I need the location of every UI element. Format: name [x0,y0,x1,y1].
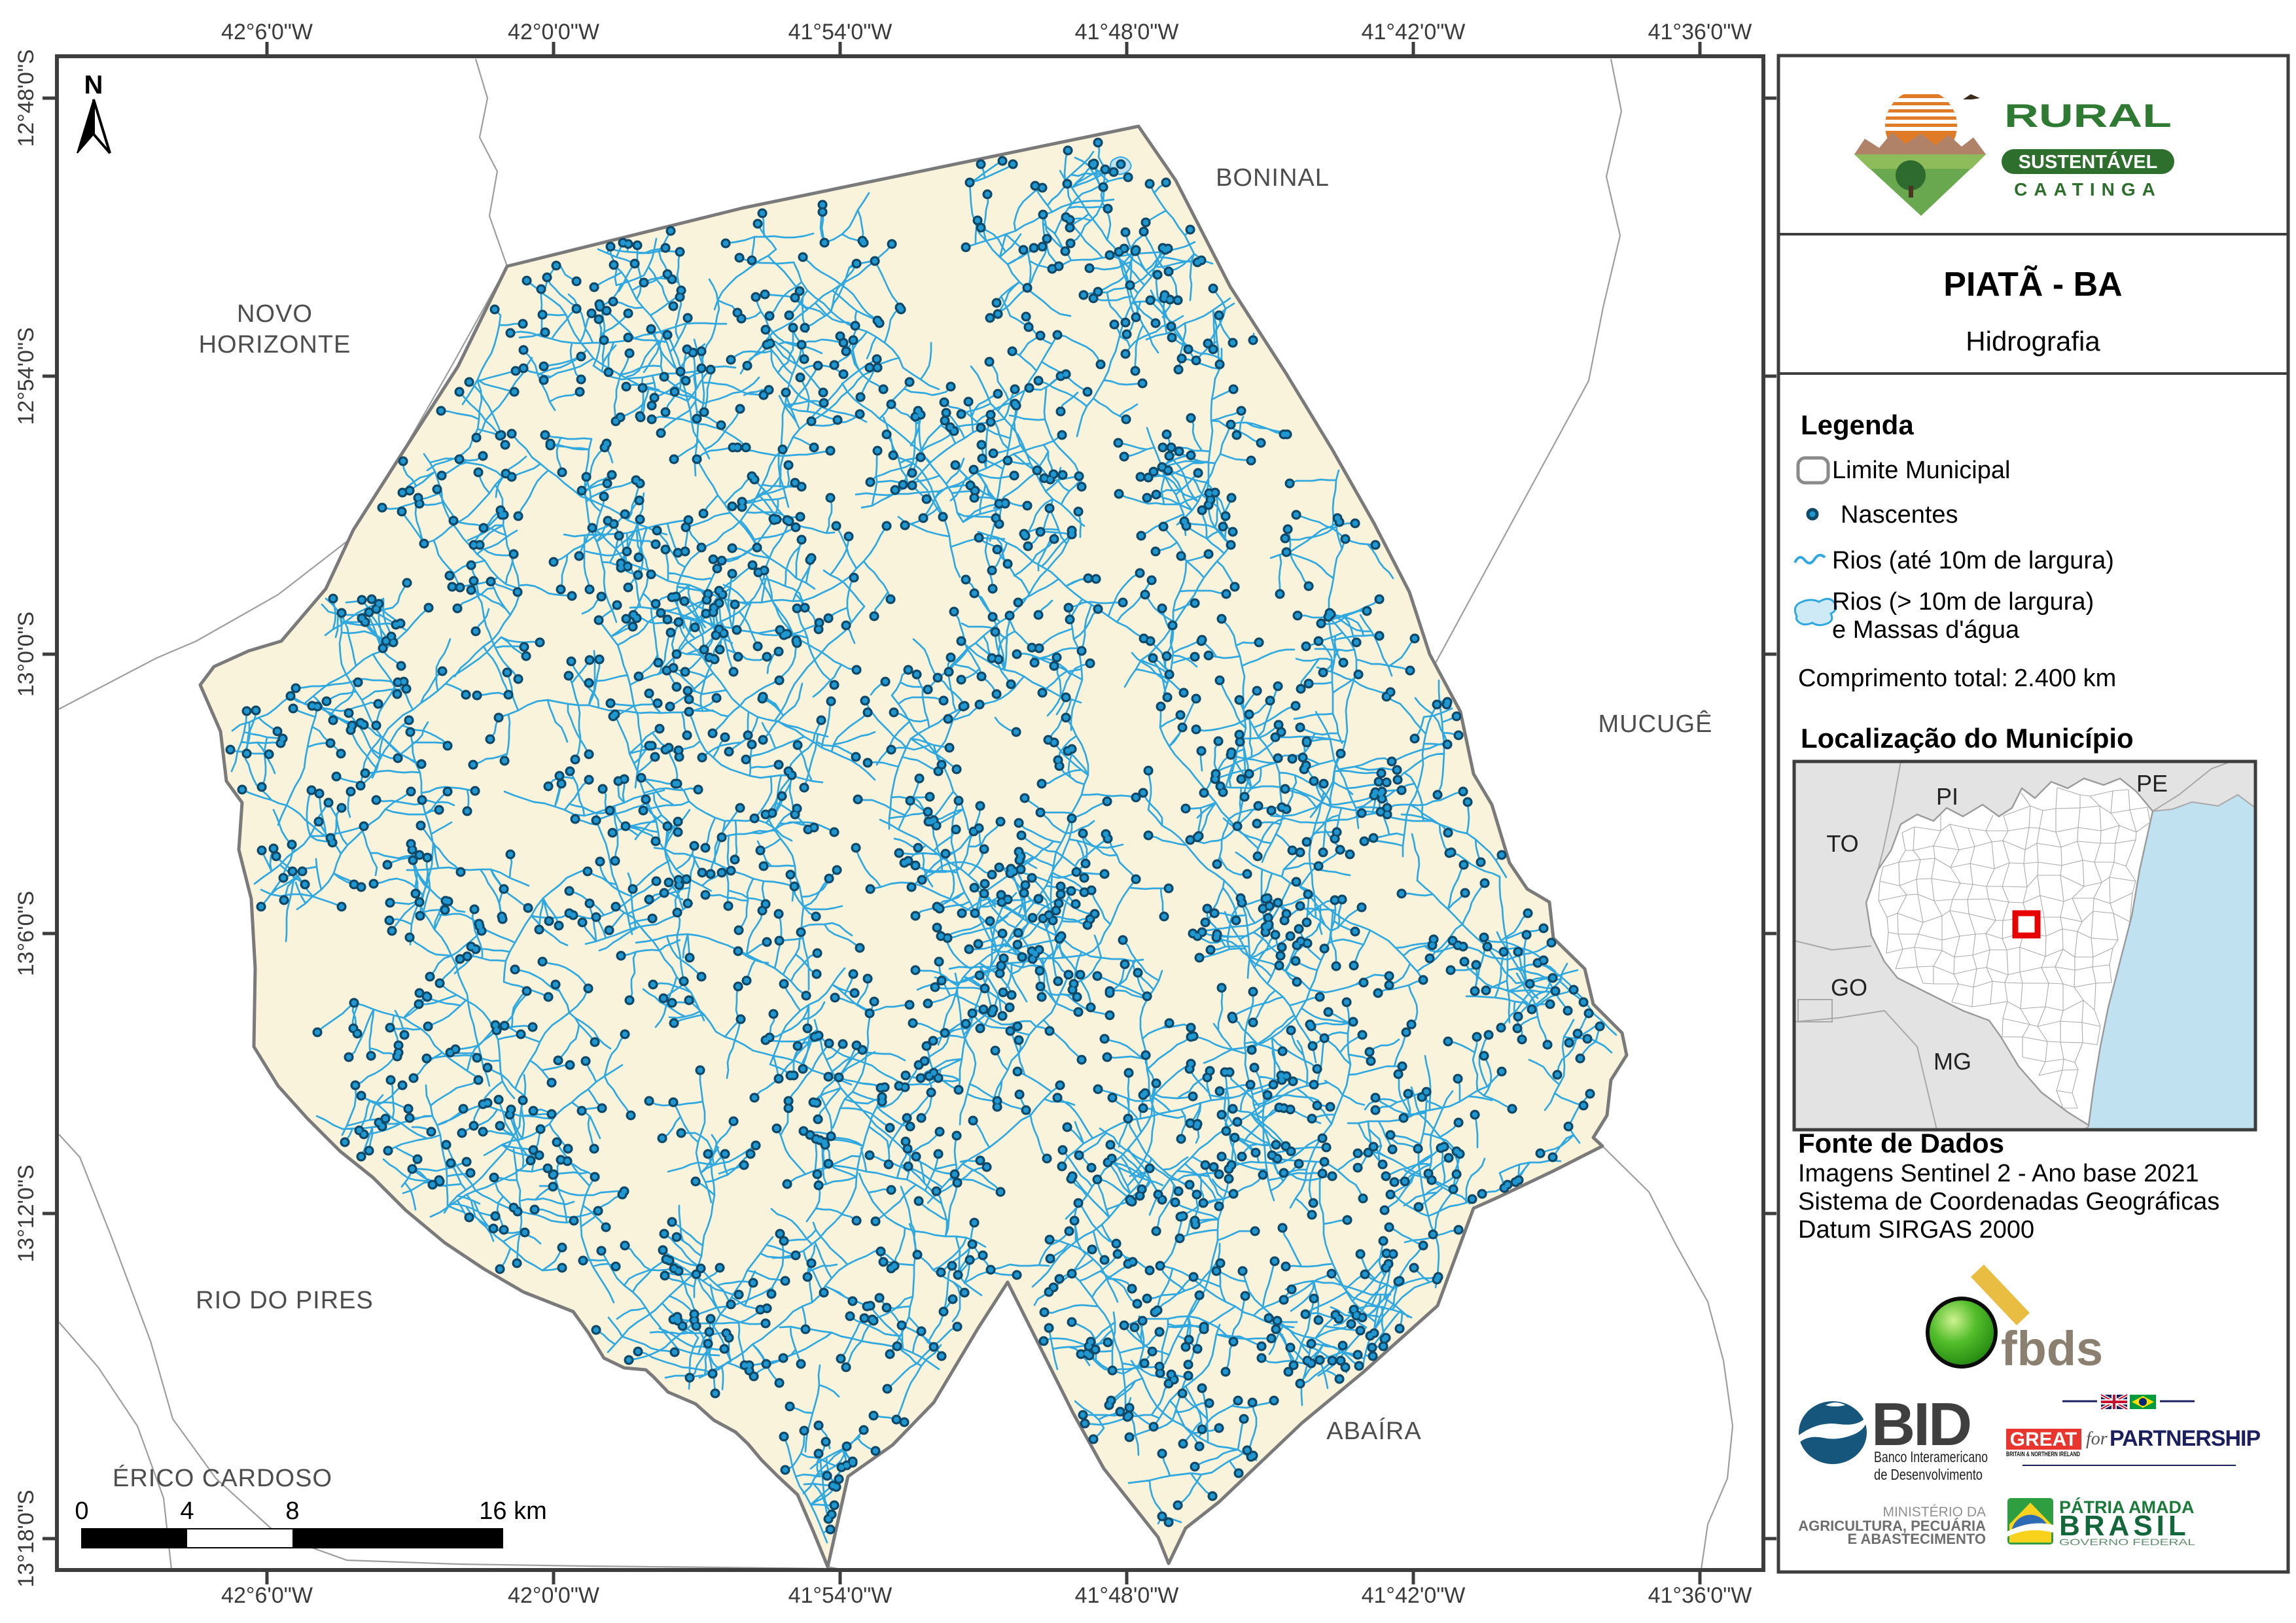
svg-text:SUSTENTÁVEL: SUSTENTÁVEL [2019,150,2158,173]
svg-text:PI: PI [1936,783,1958,810]
svg-text:12°48'0"S: 12°48'0"S [14,49,39,147]
svg-text:41°42'0"W: 41°42'0"W [1362,20,1466,44]
svg-text:Fonte de Dados: Fonte de Dados [1798,1128,2004,1159]
svg-text:RIO DO PIRES: RIO DO PIRES [196,1287,374,1314]
svg-text:41°54'0"W: 41°54'0"W [788,1583,892,1608]
svg-text:PARTNERSHIP: PARTNERSHIP [2110,1426,2260,1451]
svg-text:13°6'0"S: 13°6'0"S [14,891,39,976]
svg-text:41°36'0"W: 41°36'0"W [1648,20,1752,44]
svg-text:13°0'0"S: 13°0'0"S [14,612,39,697]
svg-text:41°42'0"W: 41°42'0"W [1362,1583,1466,1608]
svg-text:13°18'0"S: 13°18'0"S [14,1490,39,1587]
svg-text:13°12'0"S: 13°12'0"S [14,1164,39,1262]
svg-text:0: 0 [75,1497,88,1525]
svg-text:42°6'0"W: 42°6'0"W [221,1583,313,1608]
svg-text:41°48'0"W: 41°48'0"W [1075,20,1179,44]
svg-text:8: 8 [285,1497,299,1525]
svg-text:GO: GO [1831,974,1867,1001]
svg-text:NOVO: NOVO [237,300,313,328]
svg-text:ÉRICO CARDOSO: ÉRICO CARDOSO [113,1464,332,1492]
svg-text:E ABASTECIMENTO: E ABASTECIMENTO [1848,1531,1986,1547]
svg-text:MUCUGÊ: MUCUGÊ [1598,710,1713,738]
svg-text:GOVERNO FEDERAL: GOVERNO FEDERAL [2059,1537,2195,1547]
svg-text:Hidrografia: Hidrografia [1966,326,2100,357]
svg-text:Comprimento total:: Comprimento total: [1798,665,2008,692]
svg-text:fbds: fbds [2001,1321,2103,1376]
svg-text:42°0'0"W: 42°0'0"W [508,1583,599,1608]
svg-text:CAATINGA: CAATINGA [2014,179,2162,200]
svg-text:PIATÃ - BA: PIATÃ - BA [1943,265,2122,304]
svg-text:41°36'0"W: 41°36'0"W [1648,1583,1752,1608]
svg-text:Nascentes: Nascentes [1841,501,1958,529]
svg-text:12°54'0"S: 12°54'0"S [14,327,39,425]
svg-text:4: 4 [180,1497,194,1525]
svg-text:Limite Municipal: Limite Municipal [1832,457,2010,484]
svg-text:Rios (> 10m de largura): Rios (> 10m de largura) [1832,588,2094,616]
svg-text:Sistema de Coordenadas Geográf: Sistema de Coordenadas Geográficas [1798,1188,2219,1215]
svg-text:Imagens Sentinel 2 - Ano base: Imagens Sentinel 2 - Ano base 2021 [1798,1160,2199,1187]
svg-text:Banco Interamericano: Banco Interamericano [1874,1448,1988,1465]
svg-text:BRITAIN & NORTHERN IRELAND: BRITAIN & NORTHERN IRELAND [2006,1451,2080,1458]
svg-text:Legenda: Legenda [1801,410,1914,440]
svg-text:Rios (até 10m de largura): Rios (até 10m de largura) [1832,547,2114,574]
svg-text:TO: TO [1826,830,1858,857]
svg-text:RURAL: RURAL [2004,97,2172,134]
svg-text:41°48'0"W: 41°48'0"W [1075,1583,1179,1608]
svg-text:for: for [2086,1429,2108,1449]
svg-text:GREAT: GREAT [2010,1429,2077,1450]
svg-text:de Desenvolvimento: de Desenvolvimento [1874,1466,1983,1483]
svg-text:41°54'0"W: 41°54'0"W [788,20,892,44]
svg-text:HORIZONTE: HORIZONTE [199,331,351,358]
svg-text:N: N [84,71,103,99]
svg-text:42°0'0"W: 42°0'0"W [508,20,599,44]
svg-text:16 km: 16 km [479,1497,546,1525]
svg-text:42°6'0"W: 42°6'0"W [221,20,313,44]
svg-text:BONINAL: BONINAL [1216,164,1330,192]
svg-text:Datum SIRGAS 2000: Datum SIRGAS 2000 [1798,1216,2034,1244]
svg-text:PE: PE [2136,770,2168,797]
svg-text:Localização do Município: Localização do Município [1801,723,2134,754]
svg-text:MG: MG [1934,1048,1971,1075]
svg-text:e Massas d'água: e Massas d'água [1832,616,2020,644]
svg-text:ABAÍRA: ABAÍRA [1326,1417,1421,1445]
svg-text:2.400 km: 2.400 km [2014,665,2116,692]
